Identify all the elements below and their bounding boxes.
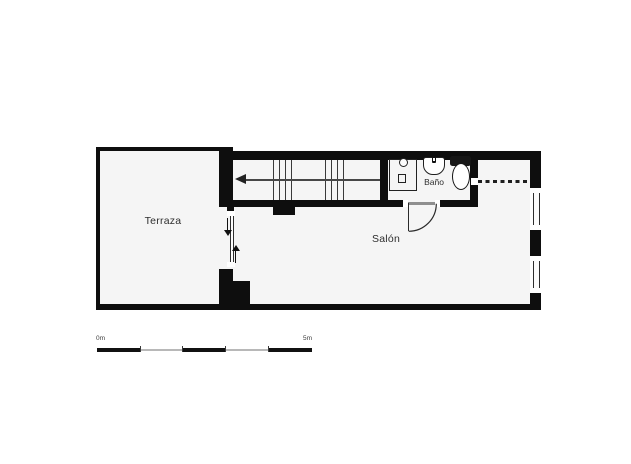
scale-tick (182, 346, 183, 353)
wall-bottom (96, 304, 541, 310)
scale-tick (225, 346, 226, 353)
wall-pier-lower (219, 269, 233, 304)
arrow-up-shaft (235, 251, 236, 263)
shower-valve-icon (399, 158, 408, 167)
scale-tick (268, 346, 269, 353)
wall-right-mid-pier (530, 230, 541, 256)
window-tick (531, 188, 541, 193)
toilet-bowl-icon (452, 163, 470, 190)
wall-top-main (233, 151, 541, 160)
wall-bano-bottom-right (440, 200, 478, 207)
wall-pier-upper (219, 147, 233, 207)
room-label-salon: Salón (372, 233, 400, 245)
stair-direction-arrow-icon (235, 174, 246, 184)
wall-stair-newel-block (273, 200, 295, 215)
door-tick-top (227, 211, 235, 216)
room-label-bano: Baño (424, 177, 444, 187)
washbasin-tap-slit (433, 158, 435, 162)
wall-pier-lower-step (233, 281, 250, 304)
scale-end-label: 5m (303, 335, 312, 342)
dashed-line-tick (471, 178, 478, 185)
door-tick-bottom (227, 262, 235, 267)
wall-bano-left (380, 160, 388, 207)
scale-segment (97, 348, 140, 352)
wall-right-top-corner (530, 151, 541, 188)
wall-right-bottom-corner (530, 293, 541, 310)
dashed-opening-line (478, 180, 530, 183)
window-tick (531, 256, 541, 261)
scale-tick (140, 346, 141, 353)
floorplan-page: Terraza Salón Baño 0m 5m (0, 0, 631, 464)
bano-door-swing-arc (408, 203, 437, 232)
wall-under-stairs (233, 200, 403, 207)
stair-direction-line (245, 179, 380, 180)
room-label-terraza: Terraza (145, 215, 182, 227)
window-tick (531, 288, 541, 293)
arrow-down-shaft (227, 218, 228, 230)
scale-segment (268, 348, 312, 352)
wall-terraza-left (96, 147, 100, 310)
scale-start-label: 0m (96, 335, 105, 342)
arrow-down-icon (224, 230, 232, 236)
window-tick (531, 225, 541, 230)
sliding-door-terraza (230, 213, 234, 266)
arrow-up-icon (232, 245, 240, 251)
scale-segment (182, 348, 225, 352)
wall-terraza-top (96, 147, 233, 151)
shower-drain-icon (398, 174, 407, 183)
